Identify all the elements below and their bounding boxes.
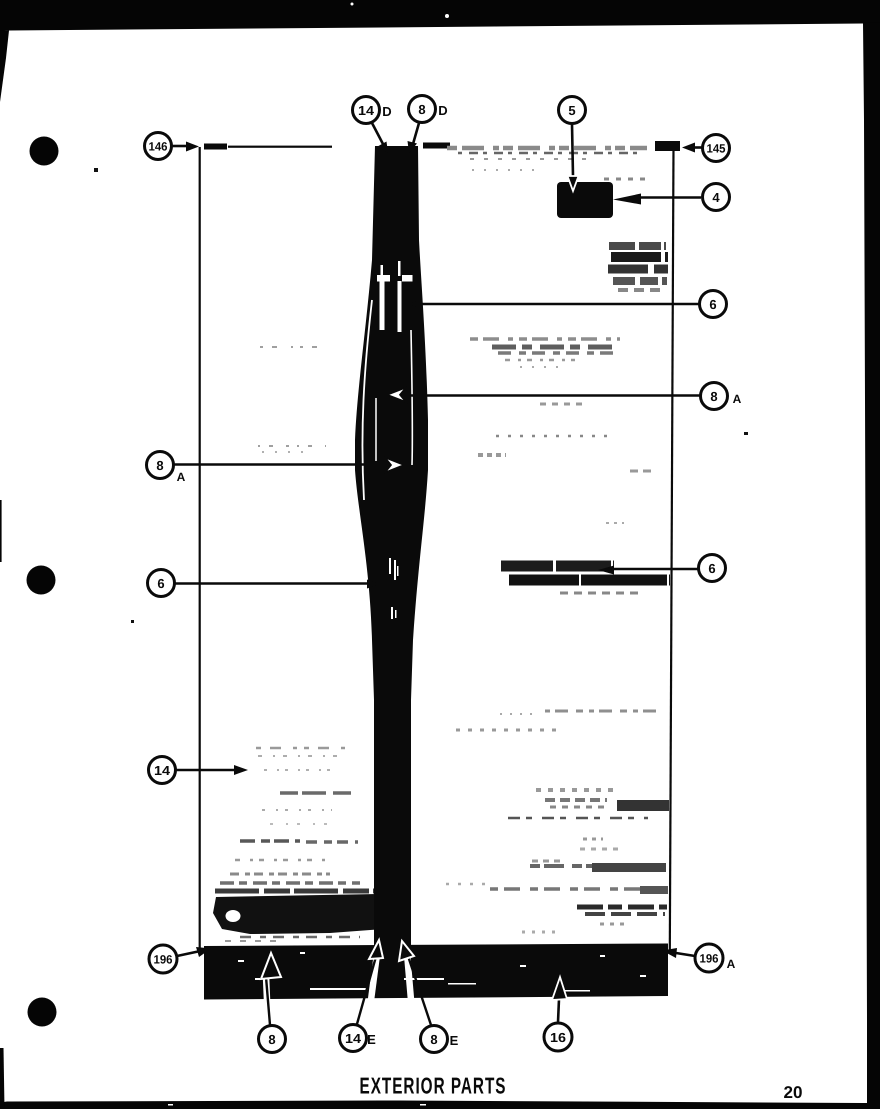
svg-text:4: 4	[712, 190, 720, 205]
svg-text:EXTERIOR PARTS: EXTERIOR PARTS	[360, 1073, 507, 1099]
svg-text:14: 14	[345, 1031, 362, 1046]
svg-text:D: D	[382, 104, 391, 119]
svg-text:196: 196	[700, 952, 719, 966]
svg-text:20: 20	[784, 1083, 803, 1102]
svg-text:14: 14	[358, 103, 375, 118]
svg-text:6: 6	[708, 561, 715, 576]
svg-text:8: 8	[430, 1032, 437, 1047]
svg-text:E: E	[450, 1033, 459, 1048]
svg-text:6: 6	[157, 576, 164, 591]
svg-text:8: 8	[268, 1032, 275, 1047]
svg-text:A: A	[727, 957, 736, 971]
svg-text:8: 8	[710, 389, 717, 404]
svg-text:A: A	[733, 392, 742, 406]
svg-text:8: 8	[418, 102, 425, 117]
svg-text:8: 8	[156, 458, 163, 473]
svg-text:E: E	[367, 1032, 376, 1047]
svg-text:146: 146	[149, 140, 168, 154]
svg-text:196: 196	[154, 953, 173, 967]
svg-text:D: D	[438, 103, 447, 118]
svg-text:14: 14	[154, 763, 171, 778]
svg-text:145: 145	[707, 142, 726, 156]
svg-text:5: 5	[568, 103, 575, 118]
svg-text:6: 6	[709, 297, 716, 312]
svg-text:16: 16	[550, 1030, 566, 1045]
svg-text:A: A	[177, 470, 186, 484]
